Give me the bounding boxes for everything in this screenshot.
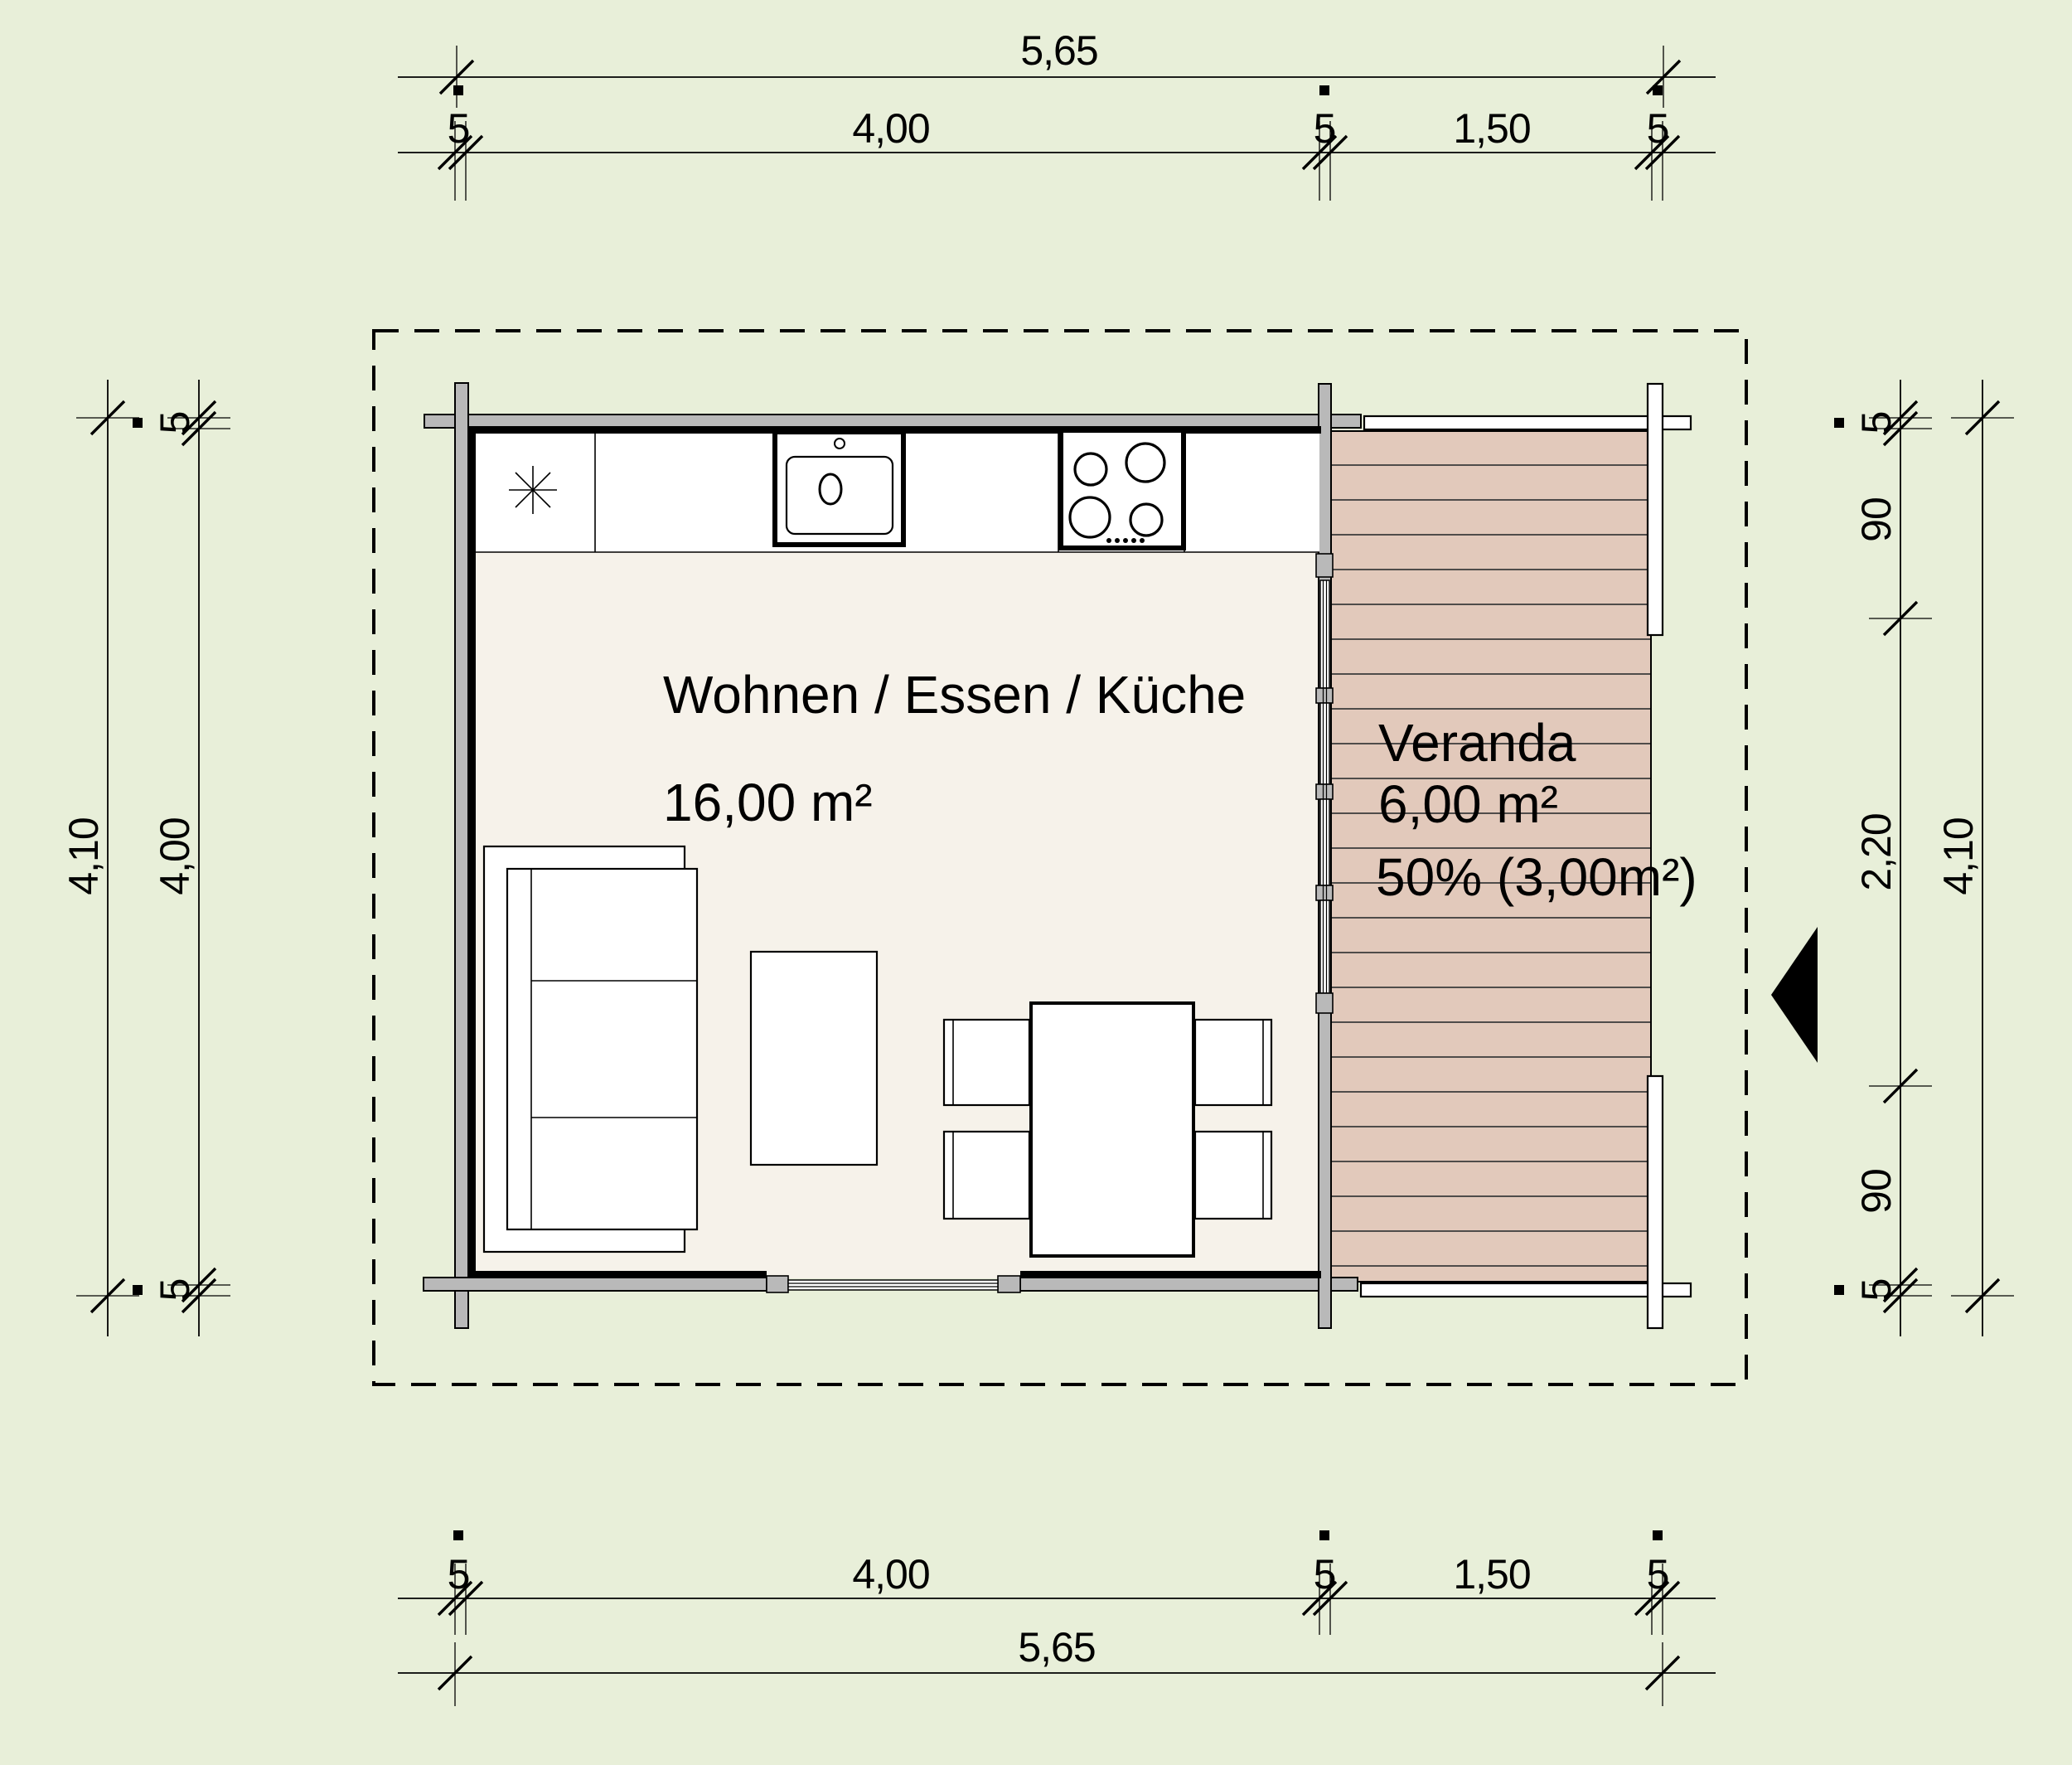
- main-room-name: Wohnen / Essen / Küche: [663, 665, 1246, 725]
- wall-bottom-left-part: [424, 1278, 767, 1291]
- veranda-railing-right-lower: [1648, 1076, 1663, 1328]
- drain-icon: [820, 474, 841, 504]
- chair: [1195, 1132, 1271, 1219]
- asterisk-symbol-icon: [509, 466, 557, 514]
- dim-top-seg: 5: [1314, 105, 1336, 152]
- sofa: [484, 846, 697, 1252]
- main-room-area: 16,00 m²: [663, 773, 873, 832]
- veranda-railing-right-upper: [1648, 384, 1663, 635]
- veranda-name: Veranda: [1378, 713, 1576, 773]
- veranda-area: 6,00 m²: [1378, 774, 1558, 834]
- wall-left: [455, 383, 468, 1328]
- dim-bottom-seg: 5: [1314, 1551, 1336, 1598]
- dim-top-total: 5,65: [1020, 27, 1097, 74]
- window-post-left: [767, 1276, 788, 1292]
- dim-top-seg: 4,00: [852, 105, 929, 152]
- dim-right-seg: 5: [1853, 412, 1900, 434]
- veranda-railing-top: [1364, 416, 1691, 429]
- dining-table: [1031, 1003, 1193, 1256]
- veranda-railing-bottom: [1361, 1283, 1691, 1297]
- chair: [944, 1132, 1029, 1219]
- dim-right-total: 4,10: [1935, 817, 1982, 895]
- dim-bottom-seg: 5: [1647, 1551, 1669, 1598]
- veranda-usable-area: 50% (3,00m²): [1376, 847, 1697, 907]
- burner-icon: [1130, 504, 1162, 536]
- dim-bottom-seg: 4,00: [852, 1551, 929, 1598]
- wall-left-inner-face: [468, 426, 476, 1277]
- glazing-post: [1316, 784, 1333, 799]
- floor-plan-drawing: 5,65 5 4,00 5 1,50 5 5 4,00 5 1,50 5 5,6…: [0, 0, 2072, 1765]
- dim-bottom-total: 5,65: [1018, 1624, 1095, 1670]
- glazing-post: [1316, 688, 1333, 703]
- kitchen-sink: [775, 432, 903, 545]
- wall-bottom-inner-face-left: [469, 1271, 767, 1278]
- chair: [944, 1020, 1029, 1105]
- burner-icon: [1075, 453, 1106, 485]
- dim-left-seg: 4,00: [152, 817, 198, 895]
- dim-top-seg: 1,50: [1453, 105, 1530, 152]
- burner-icon: [1070, 497, 1110, 537]
- dim-bottom-seg: 5: [448, 1551, 470, 1598]
- burner-icon: [1126, 444, 1164, 482]
- chair: [1195, 1020, 1271, 1105]
- wall-bottom-right-part: [1020, 1278, 1358, 1291]
- glazing-post: [1316, 554, 1333, 577]
- coffee-table: [751, 952, 877, 1165]
- faucet-hole-icon: [835, 439, 845, 449]
- dim-right-seg: 5: [1853, 1279, 1900, 1302]
- window-glazing: [788, 1280, 998, 1290]
- dim-right-seg: 90: [1853, 497, 1900, 542]
- dim-bottom-seg: 1,50: [1453, 1551, 1530, 1598]
- wall-top: [424, 415, 1361, 428]
- dim-top-seg: 5: [1647, 105, 1669, 152]
- glazing-post: [1316, 885, 1333, 900]
- dim-right-seg: 2,20: [1853, 813, 1900, 890]
- wall-bottom-inner-face-right: [1020, 1271, 1321, 1278]
- dim-left-seg: 5: [152, 1279, 198, 1302]
- cooktop: [1061, 430, 1184, 548]
- dim-right-seg: 90: [1853, 1169, 1900, 1214]
- dim-left-seg: 5: [152, 412, 198, 434]
- kitchen-counter: [476, 430, 1319, 552]
- glazing-post: [1316, 993, 1333, 1013]
- dim-left-total: 4,10: [61, 817, 107, 895]
- window-post-right: [998, 1276, 1020, 1292]
- dim-top-seg: 5: [448, 105, 470, 152]
